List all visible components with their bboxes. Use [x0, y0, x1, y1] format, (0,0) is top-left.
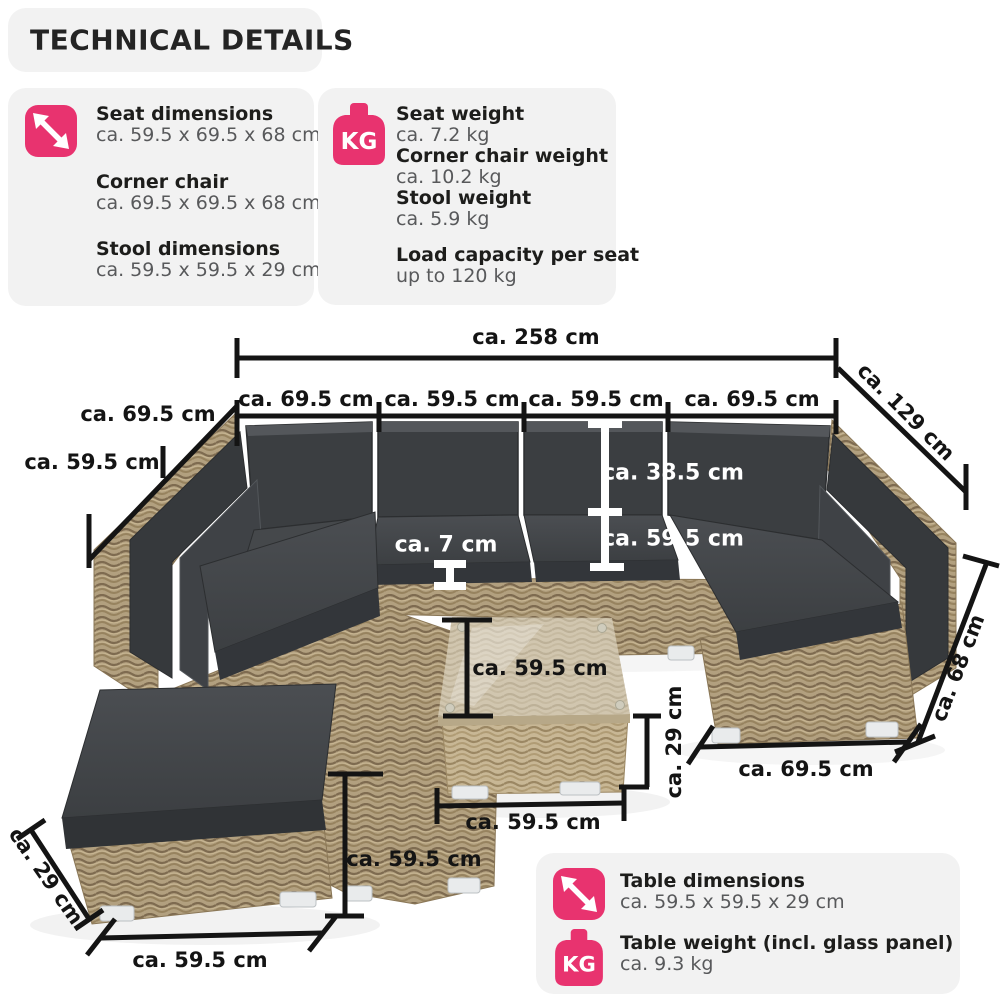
spec-value: ca. 9.3 kg	[620, 954, 953, 975]
diagonal-arrows-icon	[25, 105, 77, 157]
dim-label-backrest-height: ca. 38.5 cm	[602, 461, 744, 486]
spec-value: up to 120 kg	[396, 266, 639, 287]
spec-label: Corner chair	[96, 172, 321, 193]
page-title: TECHNICAL DETAILS	[30, 24, 354, 57]
title-panel: TECHNICAL DETAILS	[8, 8, 322, 72]
dimensions-panel: Seat dimensions ca. 59.5 x 69.5 x 68 cm …	[8, 88, 314, 306]
dim-label-left-depth: ca. 69.5 cm	[80, 402, 215, 426]
kg-weight-icon: KG	[333, 103, 385, 165]
dim-label-seat-width-1: ca. 69.5 cm	[238, 387, 373, 411]
dim-label-stool-width: ca. 59.5 cm	[132, 948, 267, 972]
dim-label-table-width: ca. 59.5 cm	[465, 810, 600, 834]
kg-icon-label: KG	[341, 129, 378, 155]
technical-details-infographic: ca. 258 cm ca. 69.5 cm ca. 59.5 cm ca. 5…	[0, 0, 1000, 1000]
dim-label-seat-depth: ca. 59.5 cm	[602, 527, 744, 552]
spec-value: ca. 59.5 x 59.5 x 29 cm	[96, 260, 321, 281]
dim-label-right-seat-width: ca. 69.5 cm	[738, 757, 873, 781]
kg-weight-icon: KG	[555, 929, 603, 986]
spec-value: ca. 10.2 kg	[396, 167, 608, 188]
spec-value: ca. 5.9 kg	[396, 209, 608, 230]
spec-label: Stool weight	[396, 188, 608, 209]
dim-label-table-depth: ca. 59.5 cm	[472, 656, 607, 680]
dim-label-seat-width-3: ca. 59.5 cm	[528, 387, 663, 411]
spec-value: ca. 69.5 x 69.5 x 68 cm	[96, 193, 321, 214]
spec-value: ca. 7.2 kg	[396, 125, 608, 146]
spec-value: ca. 59.5 x 59.5 x 29 cm	[620, 892, 845, 913]
spec-label: Load capacity per seat	[396, 245, 639, 266]
spec-label: Table dimensions	[620, 871, 845, 892]
spec-label: Table weight (incl. glass panel)	[620, 933, 953, 954]
dim-label-overall-width: ca. 258 cm	[472, 325, 599, 349]
dim-label-table-height: ca. 29 cm	[662, 686, 686, 799]
dim-label-cushion-height: ca. 7 cm	[395, 533, 498, 558]
diagonal-arrows-icon	[553, 868, 605, 920]
dim-label-stool-depth: ca. 59.5 cm	[346, 847, 481, 871]
dim-label-seat-width-2: ca. 59.5 cm	[384, 387, 519, 411]
dim-label-left-seat-depth: ca. 59.5 cm	[24, 450, 159, 474]
weights-panel: KG Seat weight ca. 7.2 kg Corner chair w…	[318, 88, 616, 305]
spec-label: Corner chair weight	[396, 146, 608, 167]
spec-label: Seat dimensions	[96, 104, 321, 125]
dim-label-seat-width-4: ca. 69.5 cm	[684, 387, 819, 411]
spec-value: ca. 59.5 x 69.5 x 68 cm	[96, 125, 321, 146]
spec-label: Seat weight	[396, 104, 608, 125]
spec-label: Stool dimensions	[96, 239, 321, 260]
stool	[62, 684, 336, 924]
kg-icon-label: KG	[562, 951, 596, 976]
table-panel: Table dimensions ca. 59.5 x 59.5 x 29 cm…	[536, 853, 960, 994]
